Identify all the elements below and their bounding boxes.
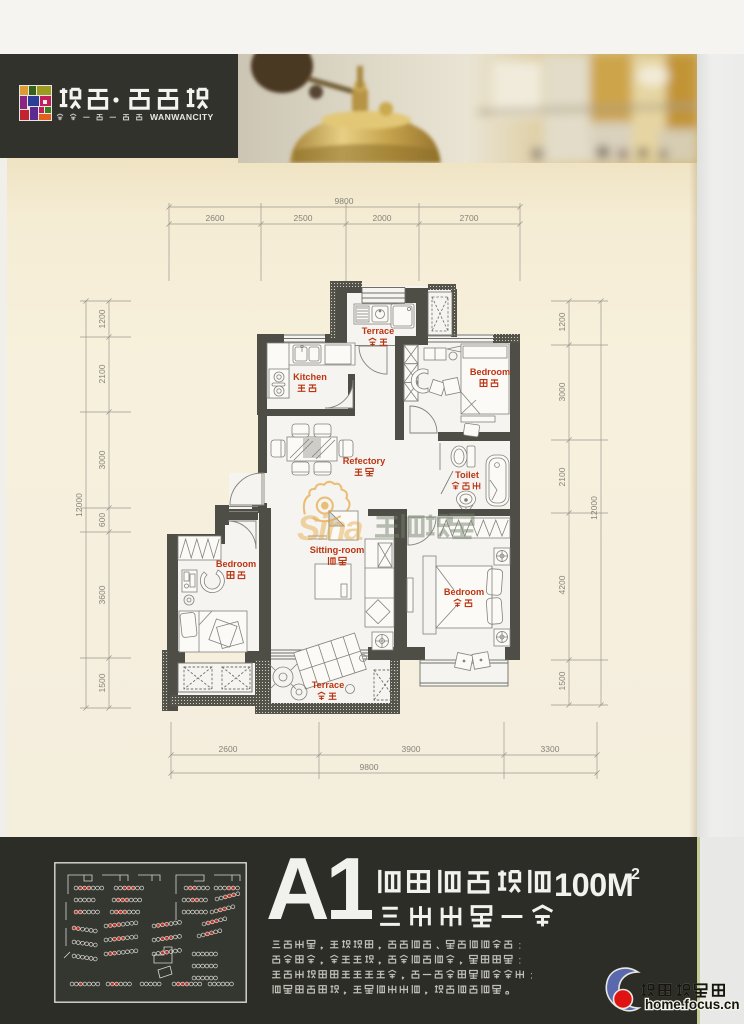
svg-text:9800: 9800 xyxy=(335,196,354,206)
svg-text:Terrace: Terrace xyxy=(312,680,345,690)
svg-text:600: 600 xyxy=(97,513,107,527)
svg-text:12000: 12000 xyxy=(589,496,599,520)
svg-text:Sina: Sina xyxy=(297,509,363,548)
svg-text:2700: 2700 xyxy=(460,213,479,223)
svg-text:9800: 9800 xyxy=(360,762,379,772)
svg-text:Bedroom: Bedroom xyxy=(216,559,256,569)
svg-text:Kitchen: Kitchen xyxy=(293,372,327,382)
svg-text:Terrace: Terrace xyxy=(362,326,395,336)
svg-text:2500: 2500 xyxy=(294,213,313,223)
svg-text:2100: 2100 xyxy=(557,467,567,486)
svg-text:Toilet: Toilet xyxy=(455,470,479,480)
svg-text:2: 2 xyxy=(631,866,640,883)
svg-text:Bedroom: Bedroom xyxy=(444,587,484,597)
svg-text:3000: 3000 xyxy=(557,382,567,401)
svg-text:WANWANCITY: WANWANCITY xyxy=(150,112,214,122)
svg-text:Bedroom: Bedroom xyxy=(470,367,510,377)
svg-text:4200: 4200 xyxy=(557,575,567,594)
svg-text:12000: 12000 xyxy=(74,493,84,517)
svg-text:3900: 3900 xyxy=(402,744,421,754)
svg-text:1200: 1200 xyxy=(557,312,567,331)
svg-text:3600: 3600 xyxy=(97,585,107,604)
svg-text:home.focus.cn: home.focus.cn xyxy=(645,997,740,1012)
svg-text:3300: 3300 xyxy=(541,744,560,754)
svg-text:2600: 2600 xyxy=(206,213,225,223)
svg-text:1200: 1200 xyxy=(97,309,107,328)
svg-text:3000: 3000 xyxy=(97,450,107,469)
svg-text:100M: 100M xyxy=(554,867,633,903)
svg-text:2000: 2000 xyxy=(373,213,392,223)
svg-text:Refectory: Refectory xyxy=(343,456,386,466)
svg-text:2600: 2600 xyxy=(219,744,238,754)
svg-text:2100: 2100 xyxy=(97,364,107,383)
svg-text:1500: 1500 xyxy=(97,673,107,692)
svg-text:1500: 1500 xyxy=(557,671,567,690)
